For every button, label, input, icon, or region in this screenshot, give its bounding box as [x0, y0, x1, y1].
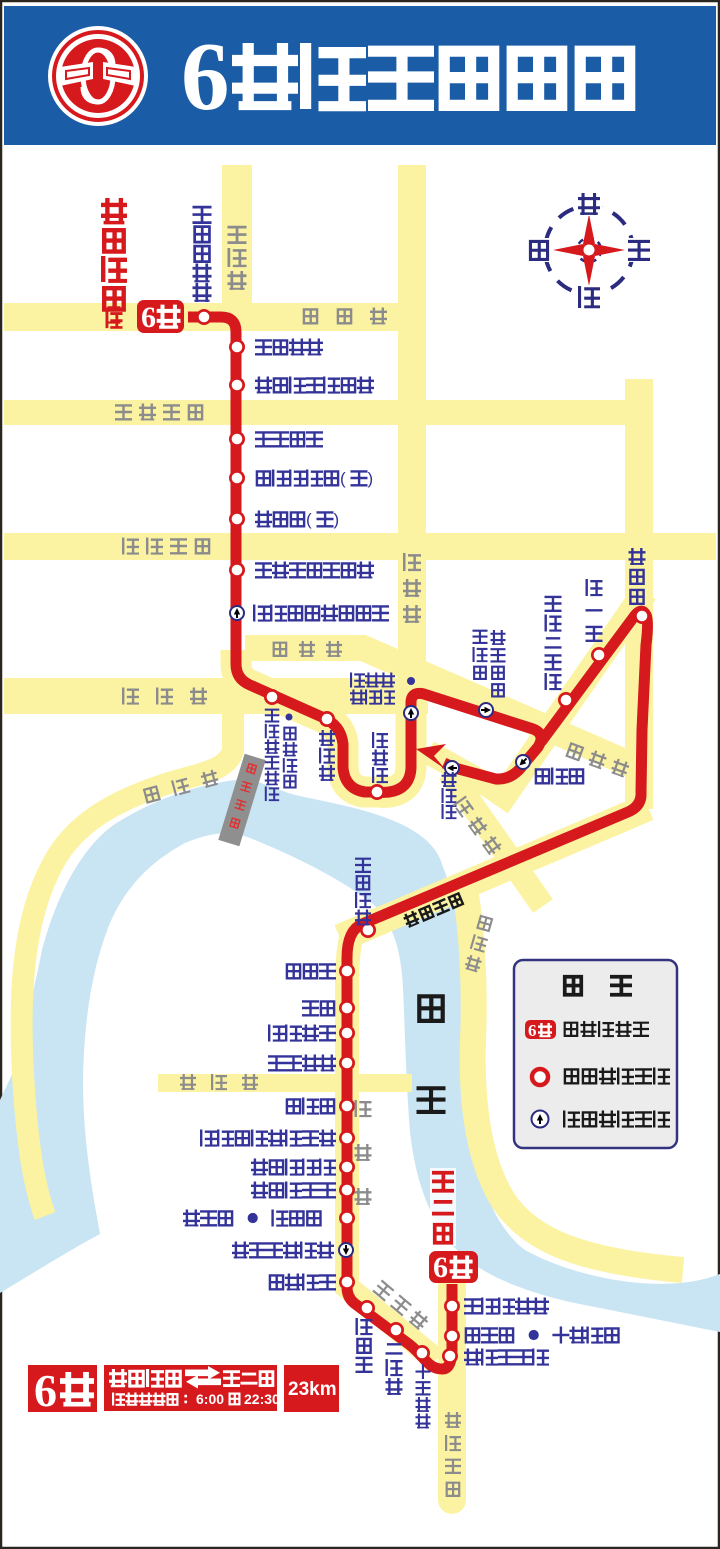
svg-text:6: 6 — [34, 1365, 57, 1416]
svg-text:): ) — [334, 510, 340, 529]
svg-text:22:30: 22:30 — [244, 1391, 280, 1407]
svg-text:6:00: 6:00 — [196, 1391, 224, 1407]
svg-text:23km: 23km — [288, 1379, 337, 1400]
svg-text:6: 6 — [433, 1251, 448, 1284]
svg-text:(: ( — [306, 510, 312, 529]
svg-text:(: ( — [340, 469, 346, 488]
svg-text:6: 6 — [528, 1021, 537, 1040]
svg-text:): ) — [368, 469, 374, 488]
svg-text:6: 6 — [181, 23, 230, 130]
svg-text:6: 6 — [141, 301, 156, 334]
